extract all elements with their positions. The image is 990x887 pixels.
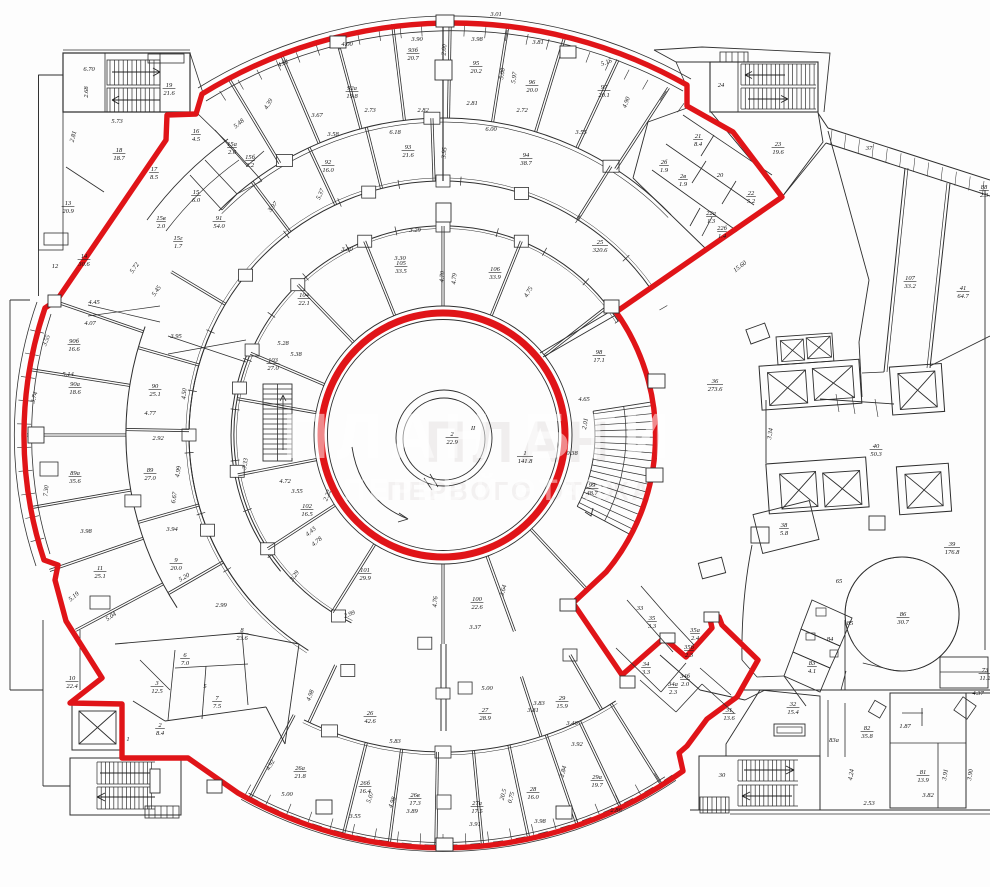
svg-text:13.9: 13.9 (917, 777, 929, 784)
svg-text:83а: 83а (829, 737, 839, 744)
svg-text:8.5: 8.5 (150, 174, 159, 181)
svg-text:93: 93 (405, 144, 412, 151)
svg-text:19.7: 19.7 (591, 782, 603, 789)
svg-text:35.6: 35.6 (68, 478, 81, 485)
svg-text:23.6: 23.6 (236, 635, 248, 642)
svg-text:5.8: 5.8 (780, 530, 789, 537)
svg-text:37: 37 (865, 145, 873, 152)
svg-text:7.0: 7.0 (181, 660, 190, 667)
svg-text:3.55: 3.55 (574, 129, 587, 136)
svg-text:15а: 15а (227, 141, 237, 148)
svg-text:ПЛАН БТИ: ПЛАН БТИ (283, 400, 678, 472)
svg-text:5.00: 5.00 (281, 791, 293, 798)
svg-text:5.38: 5.38 (290, 351, 302, 358)
svg-text:3.29: 3.29 (408, 227, 421, 234)
svg-text:2.0: 2.0 (157, 223, 166, 230)
svg-text:106: 106 (490, 266, 501, 273)
svg-text:95: 95 (473, 60, 480, 67)
svg-text:3.89: 3.89 (405, 808, 418, 815)
svg-text:4.77: 4.77 (144, 410, 156, 417)
svg-text:2.82: 2.82 (417, 107, 429, 114)
svg-text:34: 34 (642, 661, 650, 668)
svg-text:27а: 27а (472, 800, 482, 807)
svg-text:2.0: 2.0 (681, 681, 690, 688)
svg-text:83: 83 (809, 660, 816, 667)
svg-text:19.6: 19.6 (772, 149, 784, 156)
svg-text:101: 101 (360, 567, 370, 574)
svg-text:1.9: 1.9 (660, 167, 669, 174)
svg-text:1.4: 1.4 (718, 233, 727, 240)
svg-text:5.28: 5.28 (277, 340, 289, 347)
svg-text:29: 29 (559, 695, 566, 702)
svg-text:5.14: 5.14 (62, 371, 74, 378)
svg-text:21.8: 21.8 (294, 773, 306, 780)
svg-text:26б: 26б (360, 780, 371, 787)
svg-text:3.3: 3.3 (641, 669, 651, 676)
svg-text:42.6: 42.6 (364, 718, 376, 725)
svg-text:22а: 22а (706, 210, 716, 217)
svg-text:3.90: 3.90 (410, 36, 423, 43)
svg-text:6.00: 6.00 (485, 126, 497, 133)
svg-text:91: 91 (216, 215, 223, 222)
svg-text:3.46: 3.46 (565, 720, 578, 727)
svg-text:5.73: 5.73 (111, 118, 123, 125)
svg-text:40: 40 (873, 443, 880, 450)
svg-text:3.98: 3.98 (79, 528, 92, 535)
svg-text:1.9: 1.9 (679, 181, 688, 188)
svg-text:21: 21 (695, 133, 702, 140)
svg-text:81: 81 (920, 769, 927, 776)
svg-text:176.8: 176.8 (945, 549, 960, 556)
svg-text:23: 23 (775, 141, 782, 148)
svg-text:22.4: 22.4 (66, 683, 78, 690)
svg-text:41: 41 (960, 285, 967, 292)
svg-text:38: 38 (780, 522, 788, 529)
svg-text:4.45: 4.45 (88, 299, 100, 306)
svg-text:15.9: 15.9 (556, 703, 568, 710)
svg-text:3.81: 3.81 (531, 39, 543, 46)
svg-text:15в: 15в (156, 215, 166, 222)
svg-text:84: 84 (827, 636, 834, 643)
svg-text:4.72: 4.72 (279, 478, 291, 485)
svg-text:73: 73 (982, 667, 989, 674)
svg-text:28.9: 28.9 (479, 715, 491, 722)
svg-text:13: 13 (65, 200, 72, 207)
svg-text:4.76: 4.76 (432, 595, 440, 608)
svg-text:33.5: 33.5 (394, 268, 407, 275)
svg-text:97: 97 (601, 84, 608, 91)
svg-text:4.5: 4.5 (192, 136, 201, 143)
svg-text:1: 1 (523, 450, 526, 457)
svg-text:30.7: 30.7 (896, 619, 909, 626)
svg-text:98: 98 (596, 349, 603, 356)
svg-text:18: 18 (116, 147, 123, 154)
svg-text:10: 10 (69, 675, 76, 682)
svg-text:2.99: 2.99 (215, 602, 227, 609)
svg-text:22.6: 22.6 (471, 604, 483, 611)
svg-text:30: 30 (718, 772, 726, 779)
svg-text:31: 31 (725, 707, 733, 714)
svg-text:20.7: 20.7 (407, 55, 419, 62)
svg-text:5.2: 5.2 (747, 198, 756, 205)
svg-text:102: 102 (302, 503, 313, 510)
svg-text:1.3: 1.3 (707, 218, 716, 225)
svg-text:16.0: 16.0 (322, 167, 334, 174)
svg-text:1: 1 (126, 736, 129, 743)
svg-text:20.0: 20.0 (170, 565, 182, 572)
svg-text:17.5: 17.5 (471, 808, 483, 815)
svg-text:2.72: 2.72 (516, 107, 528, 114)
svg-text:18.6: 18.6 (69, 389, 81, 396)
svg-text:92а: 92а (347, 85, 357, 92)
svg-text:4.65: 4.65 (578, 396, 590, 403)
svg-text:86: 86 (900, 611, 907, 618)
svg-text:II: II (470, 425, 476, 432)
svg-text:90б: 90б (69, 338, 80, 345)
svg-text:2.73: 2.73 (364, 107, 376, 114)
svg-text:27.0: 27.0 (144, 475, 156, 482)
svg-text:3.95: 3.95 (169, 333, 182, 340)
svg-text:89а: 89а (70, 470, 80, 477)
svg-text:2.86: 2.86 (610, 807, 622, 814)
svg-text:32: 32 (789, 701, 797, 708)
svg-text:2б: 2б (661, 159, 668, 166)
svg-text:15г: 15г (173, 235, 183, 242)
svg-text:5.00: 5.00 (481, 685, 493, 692)
svg-text:12: 12 (52, 263, 59, 270)
svg-text:0.38: 0.38 (566, 450, 578, 457)
svg-text:25: 25 (597, 239, 604, 246)
svg-text:88: 88 (981, 184, 988, 191)
svg-text:3.55: 3.55 (348, 813, 361, 820)
svg-text:2.6: 2.6 (228, 149, 237, 156)
svg-text:104: 104 (299, 292, 310, 299)
svg-text:2.00: 2.00 (441, 43, 449, 56)
svg-text:4.1: 4.1 (808, 668, 816, 675)
svg-text:15б: 15б (245, 154, 256, 161)
svg-text:39: 39 (948, 541, 956, 548)
svg-text:38.7: 38.7 (519, 160, 532, 167)
svg-text:17: 17 (151, 166, 158, 173)
svg-text:16.0: 16.0 (527, 794, 539, 801)
svg-text:33: 33 (636, 605, 644, 612)
svg-text:26: 26 (367, 710, 374, 717)
svg-text:17.1: 17.1 (593, 357, 604, 364)
svg-text:4.07: 4.07 (84, 320, 96, 327)
svg-text:65: 65 (836, 578, 843, 585)
svg-text:19: 19 (166, 82, 173, 89)
svg-text:27: 27 (482, 707, 489, 714)
svg-text:90: 90 (152, 383, 159, 390)
svg-text:19.8: 19.8 (346, 93, 358, 100)
svg-text:6.18: 6.18 (389, 129, 401, 136)
svg-text:8.4: 8.4 (156, 730, 165, 737)
svg-text:3.30: 3.30 (393, 255, 406, 262)
svg-text:141.8: 141.8 (518, 458, 533, 465)
svg-text:2.3: 2.3 (669, 689, 678, 696)
svg-text:64.7: 64.7 (957, 293, 969, 300)
svg-text:82: 82 (864, 725, 871, 732)
svg-text:25.1: 25.1 (149, 391, 160, 398)
svg-text:33.2: 33.2 (903, 283, 916, 290)
svg-text:107: 107 (905, 275, 916, 282)
svg-text:3.81: 3.81 (526, 707, 538, 714)
svg-text:89: 89 (147, 467, 154, 474)
svg-text:6.70: 6.70 (83, 66, 95, 73)
svg-text:4.79: 4.79 (451, 272, 459, 285)
svg-text:4.37: 4.37 (972, 690, 984, 697)
svg-text:3.01: 3.01 (489, 11, 501, 18)
svg-text:54.0: 54.0 (213, 223, 225, 230)
svg-text:2.2: 2.2 (246, 162, 255, 169)
svg-text:320.6: 320.6 (592, 247, 608, 254)
svg-text:16: 16 (193, 128, 200, 135)
svg-text:13.6: 13.6 (723, 715, 735, 722)
svg-text:99: 99 (589, 482, 596, 489)
svg-text:1.87: 1.87 (899, 723, 911, 730)
svg-text:20.9: 20.9 (62, 208, 74, 215)
svg-text:2.92: 2.92 (152, 435, 164, 442)
svg-text:27.0: 27.0 (267, 365, 279, 372)
svg-text:35.8: 35.8 (860, 733, 873, 740)
svg-text:96: 96 (529, 79, 536, 86)
svg-text:3.92: 3.92 (570, 741, 583, 748)
svg-text:20: 20 (717, 172, 724, 179)
svg-text:11.2: 11.2 (980, 675, 990, 682)
svg-text:20.0: 20.0 (526, 87, 538, 94)
svg-text:50.3: 50.3 (870, 451, 882, 458)
svg-text:3.55: 3.55 (290, 488, 303, 495)
svg-text:36: 36 (711, 378, 719, 385)
svg-text:30.6: 30.6 (77, 261, 90, 268)
svg-text:20.2: 20.2 (470, 68, 482, 75)
svg-text:29.9: 29.9 (359, 575, 371, 582)
svg-text:8.4: 8.4 (694, 141, 703, 148)
svg-text:3.82: 3.82 (921, 792, 934, 799)
svg-text:33.9: 33.9 (488, 274, 501, 281)
svg-text:90а: 90а (70, 381, 80, 388)
svg-text:5.83: 5.83 (389, 738, 401, 745)
svg-text:3.83: 3.83 (532, 700, 545, 707)
svg-text:3.58: 3.58 (326, 131, 339, 138)
svg-text:20.1: 20.1 (598, 92, 609, 99)
svg-text:18.7: 18.7 (113, 155, 125, 162)
svg-text:6.0: 6.0 (192, 197, 201, 204)
svg-text:4.00: 4.00 (341, 41, 353, 48)
svg-text:34б: 34б (679, 673, 691, 680)
svg-text:29а: 29а (592, 774, 602, 781)
svg-text:12.5: 12.5 (151, 688, 163, 695)
svg-text:3.95: 3.95 (440, 146, 448, 160)
svg-text:4.50: 4.50 (181, 387, 189, 400)
svg-text:2.81: 2.81 (466, 100, 477, 107)
svg-text:103: 103 (268, 357, 279, 364)
svg-text:3.98: 3.98 (533, 818, 546, 825)
svg-text:3.98: 3.98 (470, 36, 483, 43)
svg-text:2.3: 2.3 (685, 652, 694, 659)
svg-text:22: 22 (748, 190, 755, 197)
svg-text:3.3: 3.3 (647, 623, 657, 630)
svg-text:94: 94 (523, 152, 530, 159)
svg-text:21.6: 21.6 (402, 152, 414, 159)
svg-text:ПЕРВЫЙ ЭТАЖ: ПЕРВЫЙ ЭТАЖ (343, 473, 616, 507)
svg-text:1.7: 1.7 (174, 243, 183, 250)
svg-text:92: 92 (325, 159, 332, 166)
svg-text:7.5: 7.5 (213, 703, 222, 710)
svg-text:25.1: 25.1 (94, 573, 105, 580)
svg-text:16.5: 16.5 (301, 511, 313, 518)
svg-text:3.30: 3.30 (340, 246, 353, 253)
svg-text:11: 11 (97, 565, 103, 572)
svg-text:22б: 22б (717, 225, 728, 232)
svg-text:3.37: 3.37 (468, 624, 481, 631)
svg-text:93б: 93б (408, 47, 419, 54)
svg-text:3.94: 3.94 (165, 526, 178, 533)
svg-text:273.6: 273.6 (708, 386, 723, 393)
svg-text:26а: 26а (295, 765, 305, 772)
svg-text:15.4: 15.4 (787, 709, 799, 716)
svg-text:21.6: 21.6 (163, 90, 175, 97)
svg-text:2.68: 2.68 (83, 86, 90, 98)
svg-text:17.3: 17.3 (409, 800, 421, 807)
svg-text:2.4: 2.4 (691, 635, 700, 642)
svg-text:34а: 34а (667, 681, 678, 688)
svg-text:85: 85 (847, 620, 854, 627)
svg-text:35: 35 (648, 615, 656, 622)
svg-text:100: 100 (472, 596, 483, 603)
svg-text:28: 28 (530, 786, 537, 793)
svg-text:2.3: 2.3 (980, 192, 989, 199)
svg-text:2в: 2в (680, 173, 686, 180)
svg-text:35б: 35б (683, 644, 695, 651)
svg-text:22.9: 22.9 (446, 439, 458, 446)
svg-text:2.53: 2.53 (863, 800, 875, 807)
svg-text:15: 15 (193, 189, 200, 196)
svg-text:16.6: 16.6 (68, 346, 80, 353)
svg-text:3.67: 3.67 (310, 112, 323, 119)
svg-text:48.7: 48.7 (586, 490, 598, 497)
svg-text:35а: 35а (689, 627, 700, 634)
svg-text:3.91: 3.91 (468, 821, 480, 828)
svg-text:26в: 26в (410, 792, 420, 799)
svg-text:22.1: 22.1 (298, 300, 309, 307)
svg-text:14: 14 (81, 253, 88, 260)
svg-text:24: 24 (718, 82, 725, 89)
svg-text:7.30: 7.30 (43, 484, 51, 497)
svg-text:4.70: 4.70 (439, 270, 447, 283)
